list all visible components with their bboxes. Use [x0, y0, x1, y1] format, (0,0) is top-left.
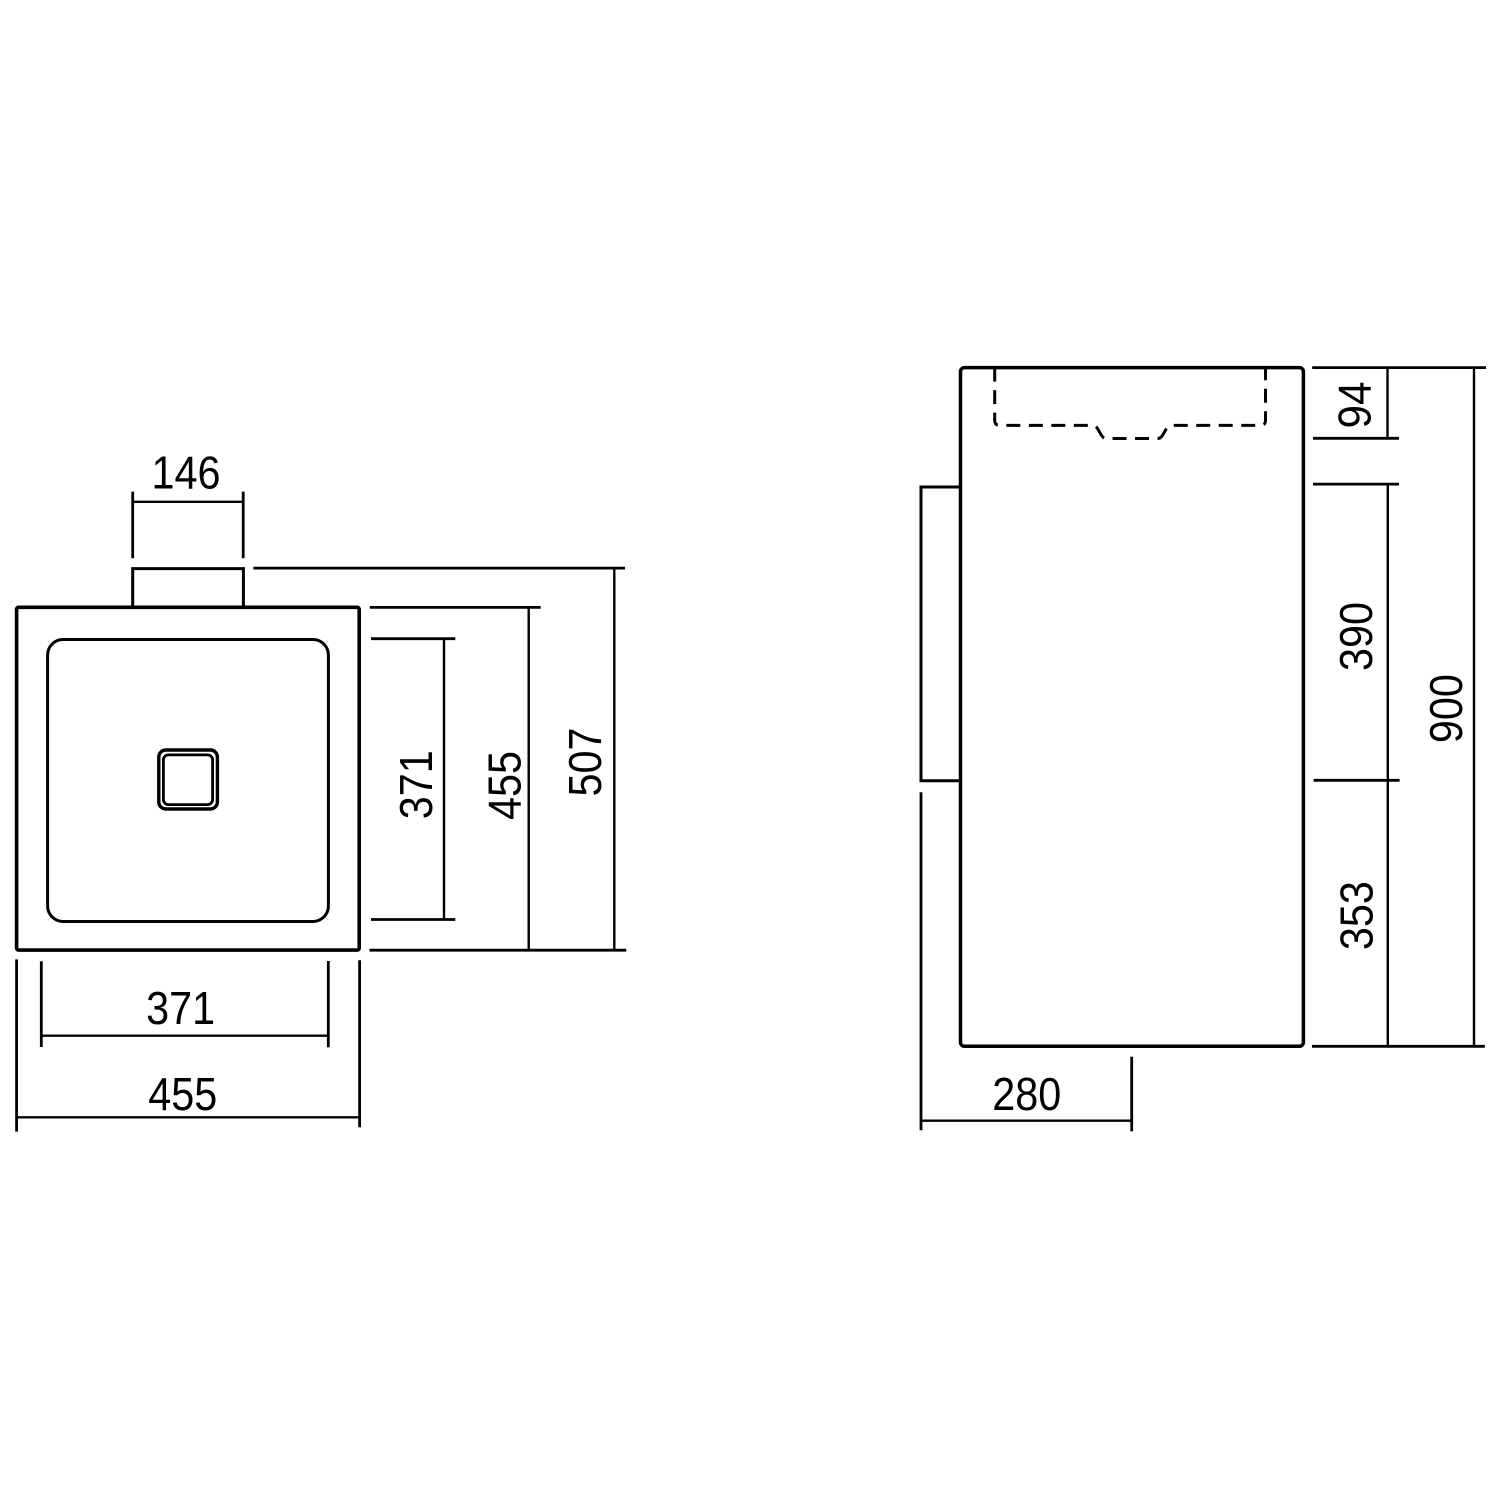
svg-text:353: 353 [1330, 881, 1382, 950]
svg-text:146: 146 [152, 447, 221, 499]
svg-text:390: 390 [1330, 602, 1382, 671]
svg-text:94: 94 [1329, 382, 1381, 429]
svg-text:900: 900 [1420, 674, 1472, 743]
svg-text:371: 371 [146, 982, 215, 1034]
svg-text:455: 455 [479, 751, 531, 820]
svg-text:507: 507 [559, 728, 611, 797]
svg-text:280: 280 [992, 1068, 1061, 1120]
svg-text:455: 455 [148, 1068, 217, 1120]
svg-text:371: 371 [390, 750, 442, 819]
